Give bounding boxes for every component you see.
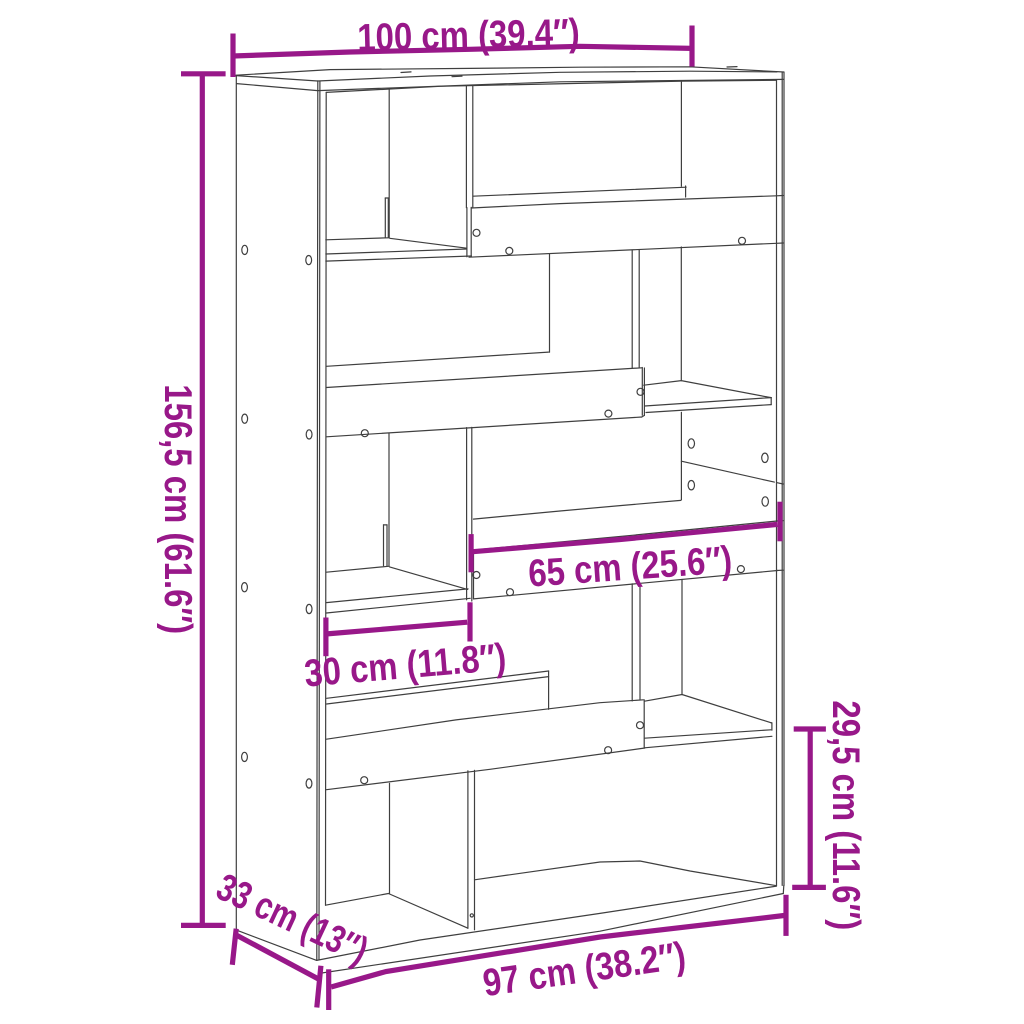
svg-text:156,5 cm (61.6″): 156,5 cm (61.6″): [156, 384, 199, 634]
svg-text:29,5 cm (11.6″): 29,5 cm (11.6″): [824, 700, 867, 930]
svg-text:100 cm (39.4″): 100 cm (39.4″): [357, 11, 580, 59]
